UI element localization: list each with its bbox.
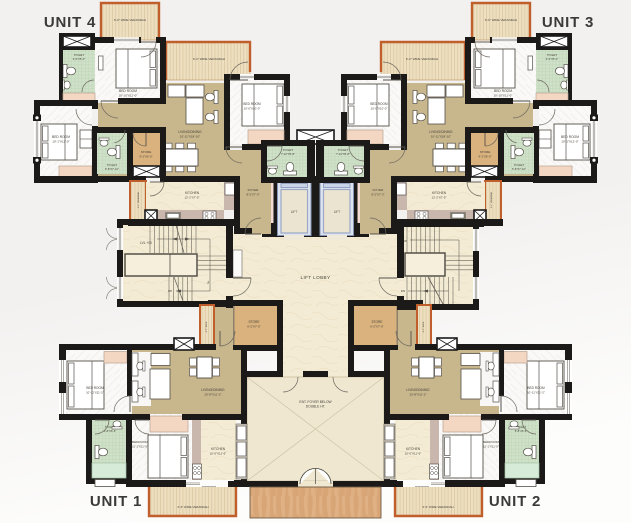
- svg-text:STORE: STORE: [141, 150, 152, 154]
- svg-text:10'-0"X11'-6": 10'-0"X11'-6": [210, 452, 226, 456]
- svg-text:DOUBLE HT.: DOUBLE HT.: [306, 405, 326, 409]
- svg-text:10'-1"X12'-0": 10'-1"X12'-0": [561, 140, 578, 144]
- svg-text:LIVING/DINING: LIVING/DINING: [178, 130, 202, 134]
- svg-text:TOILET: TOILET: [338, 148, 349, 152]
- svg-text:6'-6" WIDE VERANDAH: 6'-6" WIDE VERANDAH: [423, 505, 454, 509]
- svg-text:6'-6" WIDE VERANDAH: 6'-6" WIDE VERANDAH: [485, 18, 517, 22]
- svg-text:BEDROOM: BEDROOM: [132, 440, 148, 444]
- svg-text:LVL +00: LVL +00: [140, 241, 152, 245]
- svg-text:9'-1"X6'-0": 9'-1"X6'-0": [478, 155, 491, 159]
- svg-text:KITCHEN: KITCHEN: [432, 191, 447, 195]
- svg-text:TOILET: TOILET: [283, 148, 294, 152]
- svg-text:20'-8"X11'-2": 20'-8"X11'-2": [204, 393, 221, 397]
- svg-text:BED ROOM: BED ROOM: [494, 89, 512, 93]
- svg-text:KITCHEN: KITCHEN: [406, 447, 421, 451]
- svg-text:LIVING/DINING: LIVING/DINING: [406, 388, 430, 392]
- svg-text:LIVING/DINING: LIVING/DINING: [429, 130, 453, 134]
- svg-text:UNIT 3: UNIT 3: [542, 14, 594, 31]
- svg-text:BEDROOM: BEDROOM: [483, 440, 499, 444]
- svg-text:10'-0"X10'-0": 10'-0"X10'-0": [244, 107, 261, 111]
- svg-text:LIFT LOBBY: LIFT LOBBY: [301, 275, 331, 280]
- svg-text:6'-2"X7'-0": 6'-2"X7'-0": [247, 324, 260, 328]
- svg-text:10'-10"X11'-0": 10'-10"X11'-0": [119, 94, 138, 98]
- svg-text:LIFT: LIFT: [334, 210, 341, 214]
- svg-text:STORE: STORE: [372, 320, 383, 324]
- svg-text:11'-1"X11'-0": 11'-1"X11'-0": [132, 445, 148, 449]
- svg-text:6'-2"X7'-0": 6'-2"X7'-0": [370, 324, 383, 328]
- svg-text:5'-8"X7'-10": 5'-8"X7'-10": [105, 167, 119, 171]
- svg-text:4'-2" WIDE: 4'-2" WIDE: [423, 321, 425, 332]
- svg-text:LIVING/DINING: LIVING/DINING: [201, 388, 225, 392]
- svg-text:5'-8"X7'-10": 5'-8"X7'-10": [512, 167, 526, 171]
- svg-text:UNIT 2: UNIT 2: [489, 493, 541, 510]
- svg-text:10'-11"X18'-10": 10'-11"X18'-10": [180, 135, 200, 139]
- svg-text:12'-2"X7'-5": 12'-2"X7'-5": [184, 196, 199, 200]
- svg-text:UP: UP: [168, 289, 172, 293]
- svg-text:4'-2" WIDE: 4'-2" WIDE: [206, 321, 208, 332]
- svg-text:TOILET: TOILET: [514, 163, 525, 167]
- svg-text:BED ROOM: BED ROOM: [527, 386, 545, 390]
- svg-text:6'-0" WIDE VERANDAH: 6'-0" WIDE VERANDAH: [193, 57, 225, 61]
- svg-text:10'-1"X12'-0": 10'-1"X12'-0": [52, 140, 69, 144]
- svg-text:BED ROOM: BED ROOM: [86, 386, 104, 390]
- svg-text:BED ROOM: BED ROOM: [561, 135, 579, 139]
- svg-text:TOILET: TOILET: [74, 53, 85, 57]
- svg-text:FOYER: FOYER: [373, 188, 384, 192]
- svg-text:6'-6"X5'-0": 6'-6"X5'-0": [73, 57, 86, 61]
- svg-text:TOILET: TOILET: [547, 53, 558, 57]
- svg-text:10'-10"X11'-0": 10'-10"X11'-0": [494, 94, 513, 98]
- svg-text:KITCHEN: KITCHEN: [211, 447, 226, 451]
- svg-text:LIFT: LIFT: [291, 210, 298, 214]
- svg-text:10'-11"X18'-10": 10'-11"X18'-10": [431, 135, 451, 139]
- svg-text:6'-6" WIDE VERANDAH: 6'-6" WIDE VERANDAH: [114, 18, 146, 22]
- svg-text:3'-4" VERANDAH: 3'-4" VERANDAH: [137, 191, 140, 208]
- svg-text:10'-0"X11'-6": 10'-0"X11'-6": [405, 452, 421, 456]
- svg-text:12'-2"X7'-5": 12'-2"X7'-5": [431, 196, 446, 200]
- svg-text:10'-0"X10'-0": 10'-0"X10'-0": [371, 107, 388, 111]
- svg-text:6'-6" WIDE VERANDAH: 6'-6" WIDE VERANDAH: [178, 505, 209, 509]
- svg-text:11'-1"X11'-0": 11'-1"X11'-0": [483, 445, 499, 449]
- svg-text:6'-0" WIDE VERANDAH: 6'-0" WIDE VERANDAH: [406, 57, 438, 61]
- svg-text:7'-10"X5'-8": 7'-10"X5'-8": [336, 152, 350, 156]
- svg-text:DN: DN: [401, 289, 405, 293]
- svg-text:BED ROOM: BED ROOM: [243, 102, 261, 106]
- svg-text:STORE: STORE: [480, 150, 491, 154]
- svg-text:UNIT 4: UNIT 4: [44, 14, 96, 31]
- svg-text:3'-4" VERANDAH: 3'-4" VERANDAH: [490, 191, 493, 208]
- svg-text:ENT. FOYER BELOW: ENT. FOYER BELOW: [299, 400, 332, 404]
- svg-text:BED ROOM: BED ROOM: [370, 102, 388, 106]
- svg-text:BED ROOM: BED ROOM: [119, 89, 137, 93]
- svg-text:10'-11"X11'-2": 10'-11"X11'-2": [86, 391, 104, 395]
- svg-text:UNIT 1: UNIT 1: [90, 493, 142, 510]
- svg-text:8'-2"X7'-3": 8'-2"X7'-3": [371, 193, 384, 197]
- svg-text:FOYER: FOYER: [248, 188, 259, 192]
- svg-text:8'-2"X7'-3": 8'-2"X7'-3": [246, 193, 259, 197]
- svg-text:BED ROOM: BED ROOM: [52, 135, 70, 139]
- svg-text:TOILET: TOILET: [107, 163, 118, 167]
- svg-text:KITCHEN: KITCHEN: [185, 191, 200, 195]
- svg-text:7'-10"X5'-8": 7'-10"X5'-8": [281, 152, 295, 156]
- svg-text:9'-1"X6'-0": 9'-1"X6'-0": [139, 155, 152, 159]
- svg-text:20'-8"X11'-2": 20'-8"X11'-2": [409, 393, 426, 397]
- svg-text:10'-11"X11'-2": 10'-11"X11'-2": [527, 391, 545, 395]
- svg-text:STORE: STORE: [249, 320, 260, 324]
- svg-text:6'-6"X5'-0": 6'-6"X5'-0": [546, 57, 559, 61]
